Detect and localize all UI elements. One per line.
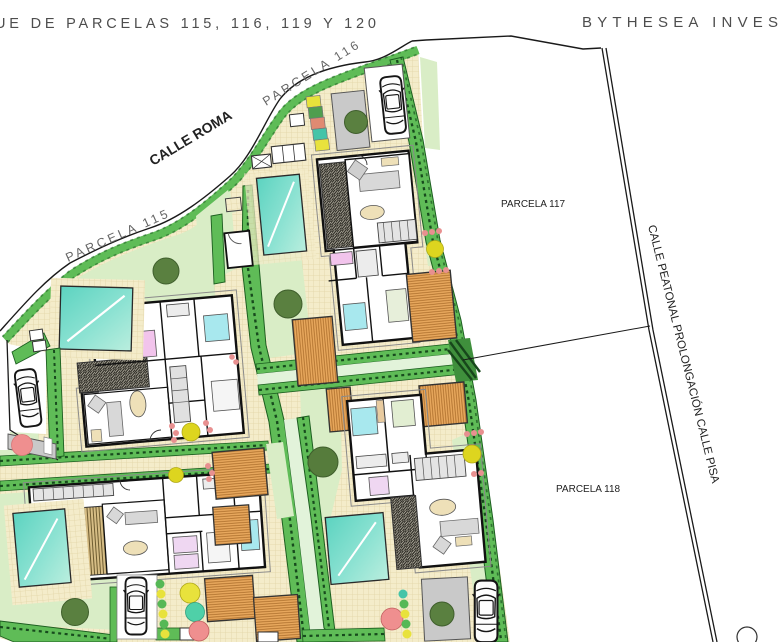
svg-text:UE DE PARCELAS 115, 116, 119 Y: UE DE PARCELAS 115, 116, 119 Y 120 [0,16,380,32]
svg-text:PARCELA 117: PARCELA 117 [501,199,566,210]
svg-text:PARCELA 118: PARCELA 118 [556,484,621,495]
svg-text:BYTHESEA INVES: BYTHESEA INVES [582,14,780,31]
